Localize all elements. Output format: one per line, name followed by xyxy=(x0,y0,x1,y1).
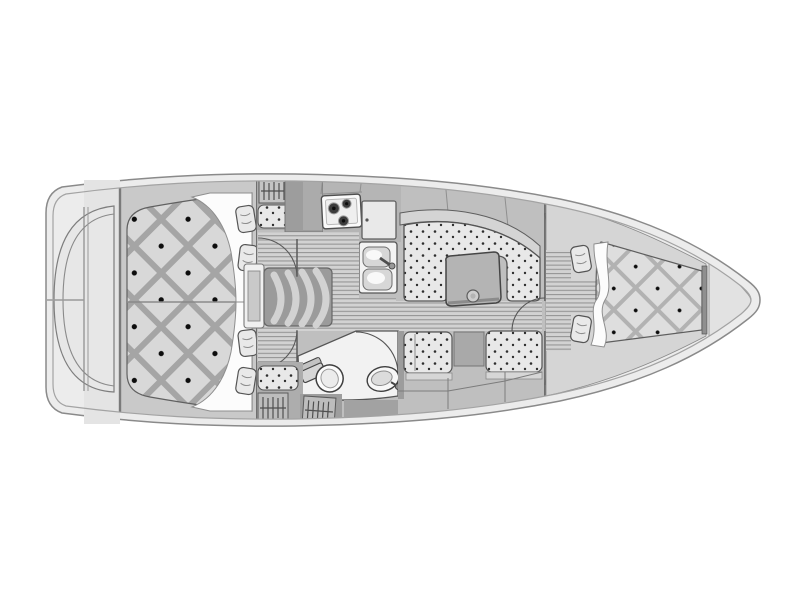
stove-burner xyxy=(342,199,351,208)
icebox-hinge xyxy=(365,218,368,221)
pillow xyxy=(237,329,258,357)
pillow xyxy=(235,367,257,395)
stove xyxy=(321,194,362,229)
stove-burner xyxy=(338,216,349,227)
wardrobe-door xyxy=(303,178,322,230)
bench-front xyxy=(406,373,452,380)
berth-foot-board xyxy=(702,266,707,334)
boat-layout-canvas xyxy=(0,0,800,600)
pillow xyxy=(570,315,592,344)
faucet-base xyxy=(389,263,395,269)
head-wall xyxy=(398,331,404,399)
locker-hatch xyxy=(259,179,287,203)
settee-cushion xyxy=(486,331,542,372)
aft-cabin xyxy=(120,178,259,426)
companionway xyxy=(244,264,332,328)
sailboat-floor-plan xyxy=(0,0,800,600)
pillow xyxy=(570,245,592,274)
icebox xyxy=(362,201,396,239)
stove-burner xyxy=(328,203,340,215)
bench-front xyxy=(486,372,542,379)
galley-sink xyxy=(359,242,397,293)
pillow xyxy=(235,205,257,233)
salon-table xyxy=(446,252,501,306)
aft-seat-cushion xyxy=(258,366,298,390)
settee-cushion xyxy=(404,332,452,373)
center-cabinet xyxy=(454,332,484,366)
